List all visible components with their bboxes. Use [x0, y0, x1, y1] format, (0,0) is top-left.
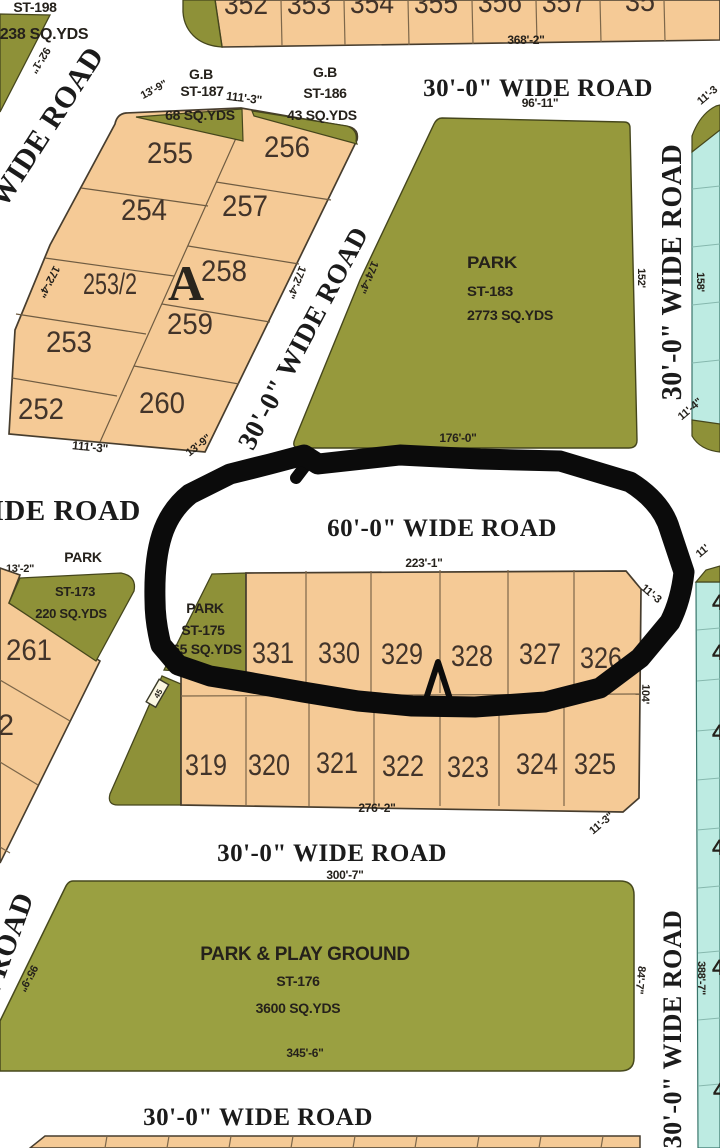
- svg-text:252: 252: [18, 393, 64, 426]
- svg-text:35: 35: [625, 0, 655, 18]
- svg-text:323: 323: [447, 751, 489, 784]
- svg-text:PARK: PARK: [467, 253, 518, 272]
- svg-text:258: 258: [201, 255, 247, 288]
- svg-text:368'-2": 368'-2": [507, 33, 544, 47]
- svg-text:352: 352: [224, 0, 268, 21]
- svg-text:4: 4: [712, 955, 720, 980]
- svg-text:152': 152': [635, 268, 647, 288]
- svg-text:30'-0" WIDE ROAD: 30'-0" WIDE ROAD: [658, 910, 687, 1148]
- svg-text:354: 354: [350, 0, 394, 20]
- svg-text:345'-6": 345'-6": [286, 1046, 323, 1060]
- svg-text:30'-0" WIDE ROAD: 30'-0" WIDE ROAD: [217, 840, 447, 867]
- svg-text:322: 322: [382, 750, 424, 783]
- svg-text:60'-0" WIDE ROAD: 60'-0" WIDE ROAD: [327, 515, 557, 542]
- svg-text:WIDE ROAD: WIDE ROAD: [0, 495, 141, 527]
- svg-text:ST-183: ST-183: [467, 283, 514, 299]
- svg-text:4: 4: [712, 590, 720, 615]
- svg-text:ST-175: ST-175: [181, 622, 225, 638]
- svg-text:220 SQ.YDS: 220 SQ.YDS: [35, 606, 107, 621]
- svg-text:257: 257: [222, 190, 268, 223]
- svg-text:321: 321: [316, 747, 358, 780]
- svg-text:356: 356: [478, 0, 522, 19]
- svg-text:176'-0": 176'-0": [439, 431, 476, 445]
- svg-text:223'-1": 223'-1": [405, 556, 442, 570]
- svg-text:357: 357: [542, 0, 586, 19]
- svg-text:ST-198: ST-198: [13, 0, 57, 15]
- svg-text:353: 353: [287, 0, 331, 21]
- svg-text:G.B: G.B: [313, 64, 337, 80]
- svg-text:355: 355: [414, 0, 458, 20]
- svg-text:276'-2": 276'-2": [358, 801, 395, 815]
- svg-text:PARK: PARK: [186, 600, 224, 616]
- svg-text:2773 SQ.YDS: 2773 SQ.YDS: [467, 307, 553, 323]
- svg-text:4: 4: [712, 720, 720, 745]
- svg-text:2: 2: [0, 709, 14, 742]
- svg-text:104': 104': [639, 684, 652, 705]
- svg-text:3600 SQ.YDS: 3600 SQ.YDS: [256, 1000, 341, 1016]
- svg-text:4: 4: [713, 1078, 720, 1103]
- svg-text:G.B: G.B: [189, 66, 213, 82]
- svg-text:ST-176: ST-176: [276, 973, 320, 989]
- svg-text:4: 4: [712, 835, 720, 860]
- svg-text:68 SQ.YDS: 68 SQ.YDS: [165, 107, 235, 123]
- svg-text:254: 254: [121, 194, 167, 227]
- svg-text:255: 255: [147, 137, 193, 170]
- svg-text:4: 4: [712, 640, 720, 665]
- svg-text:ST-173: ST-173: [55, 584, 95, 599]
- svg-text:324: 324: [516, 748, 558, 781]
- svg-text:319: 319: [185, 749, 227, 782]
- svg-text:259: 259: [167, 308, 213, 341]
- svg-text:253: 253: [46, 326, 92, 359]
- svg-text:158': 158': [694, 272, 706, 292]
- svg-text:ST-186: ST-186: [303, 85, 347, 101]
- svg-text:327: 327: [519, 638, 561, 671]
- svg-text:261: 261: [6, 634, 52, 667]
- svg-text:253/2: 253/2: [83, 268, 137, 301]
- svg-text:320: 320: [248, 749, 290, 782]
- svg-text:256: 256: [264, 131, 310, 164]
- svg-text:A: A: [168, 255, 204, 311]
- svg-text:331: 331: [252, 637, 294, 670]
- svg-text:238 SQ.YDS: 238 SQ.YDS: [0, 26, 89, 43]
- svg-text:30'-0" WIDE ROAD: 30'-0" WIDE ROAD: [143, 1104, 373, 1131]
- svg-text:PARK: PARK: [64, 549, 102, 565]
- svg-text:260: 260: [139, 387, 185, 420]
- svg-text:330: 330: [318, 637, 360, 670]
- svg-text:ST-187: ST-187: [180, 83, 224, 99]
- svg-text:328: 328: [451, 640, 493, 673]
- svg-text:96'-11": 96'-11": [522, 96, 558, 110]
- svg-text:43 SQ.YDS: 43 SQ.YDS: [287, 107, 357, 123]
- svg-text:329: 329: [381, 638, 423, 671]
- svg-text:30'-0" WIDE ROAD: 30'-0" WIDE ROAD: [657, 144, 688, 400]
- svg-text:300'-7": 300'-7": [326, 868, 363, 882]
- svg-text:325: 325: [574, 748, 616, 781]
- svg-text:388'-7": 388'-7": [695, 961, 707, 995]
- svg-text:PARK & PLAY GROUND: PARK & PLAY GROUND: [200, 944, 410, 965]
